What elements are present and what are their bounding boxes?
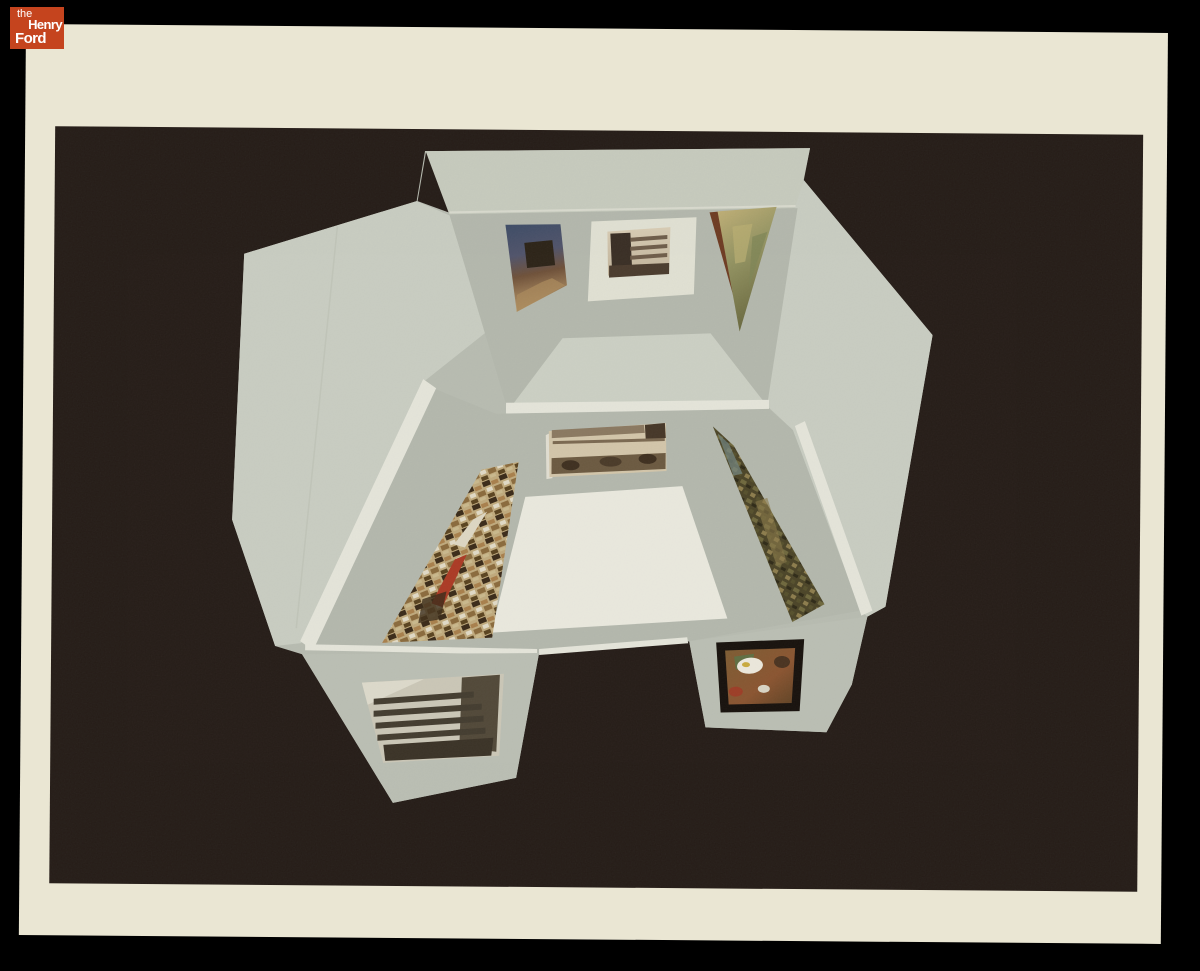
- gallery-model-photo: [49, 126, 1143, 892]
- film-grain-overlay: [49, 126, 1143, 892]
- photo-print-area: [49, 126, 1143, 892]
- page: { "logo": { "the": "the", "henry": "Henr…: [0, 0, 1200, 971]
- henry-ford-logo: the Henry Ford: [10, 7, 64, 49]
- logo-word-ford: Ford: [15, 31, 46, 46]
- photograph-paper: [19, 24, 1168, 944]
